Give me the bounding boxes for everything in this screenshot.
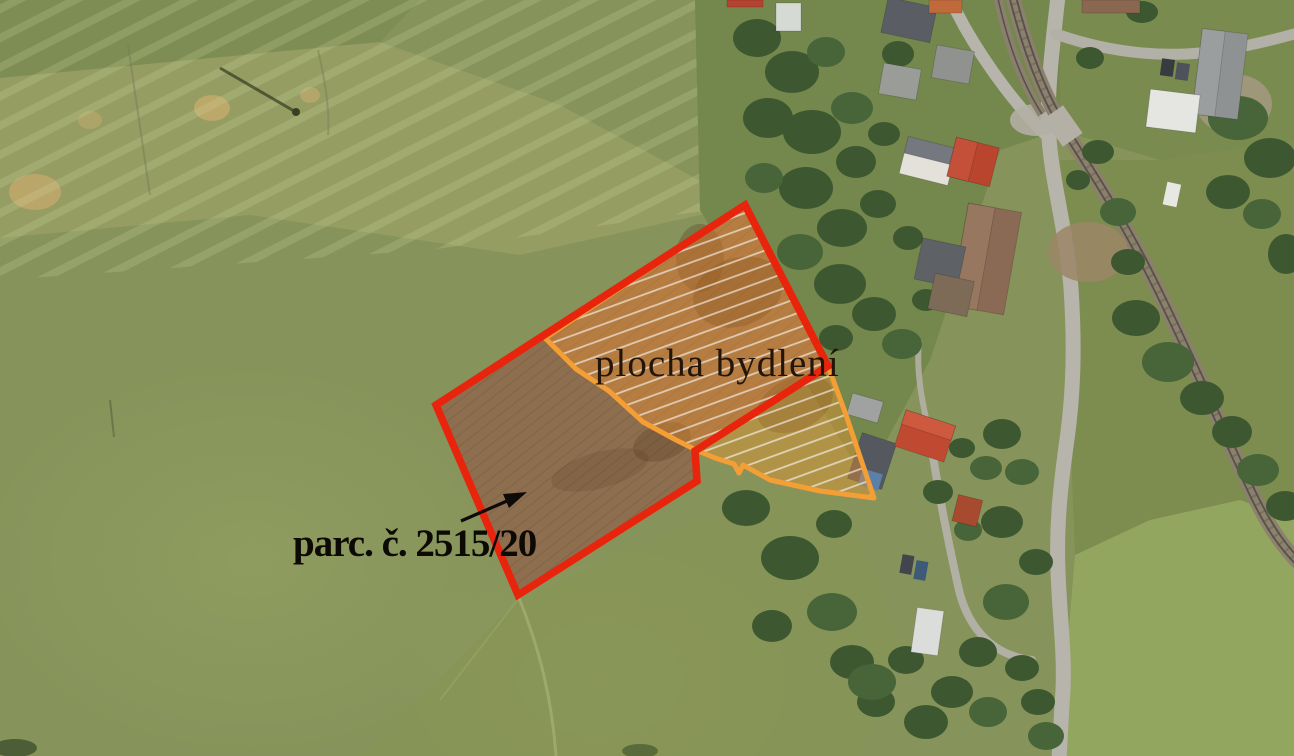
greenhouse [911, 607, 944, 655]
aerial-map-annotation: plocha bydlení parc. č. 2515/20 [0, 0, 1294, 756]
aerial-basemap [0, 0, 1294, 756]
dirt-patch [1048, 222, 1128, 282]
greenhouse [776, 3, 801, 31]
